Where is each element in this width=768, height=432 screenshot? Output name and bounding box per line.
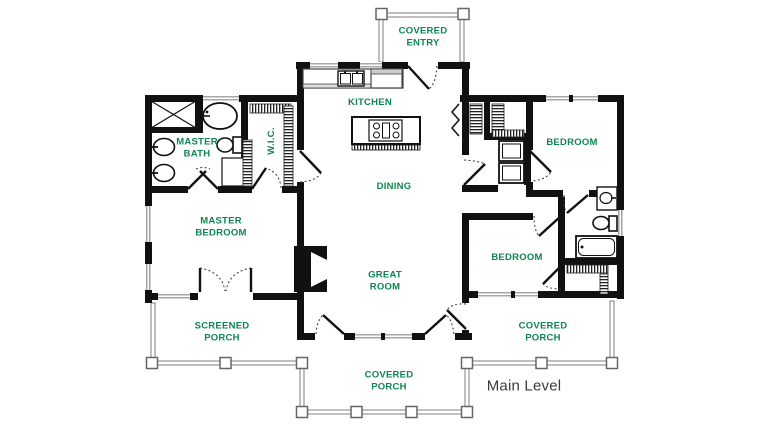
cooktop-symbol	[369, 120, 402, 141]
double-vanity-sinks-symbol	[152, 139, 175, 182]
label-great-room: GREAT ROOM	[368, 269, 402, 292]
kitchen-sink-symbol	[338, 71, 364, 86]
freestanding-tub-symbol	[203, 103, 237, 129]
label-covered-porch-right: COVERED PORCH	[519, 320, 568, 343]
shower-symbol	[151, 101, 196, 128]
linen-cabinet-symbol	[222, 158, 244, 186]
label-wic: W.I.C.	[266, 127, 278, 154]
label-covered-entry: COVERED ENTRY	[399, 25, 448, 48]
label-master-bedroom: MASTER BEDROOM	[195, 215, 246, 238]
entry-closet-rods	[470, 104, 524, 137]
toilet-symbol-master	[217, 137, 242, 153]
hall-vanity-sink-symbol	[597, 187, 617, 210]
washer-dryer-symbol	[499, 141, 524, 183]
label-covered-porch-bottom: COVERED PORCH	[365, 369, 414, 392]
hall-bathtub-symbol	[576, 236, 617, 258]
label-bedroom-bottom: BEDROOM	[491, 252, 542, 264]
fireplace-symbol	[294, 246, 327, 292]
refrigerator-symbol	[371, 69, 402, 88]
toilet-symbol-hall	[593, 216, 617, 231]
bifold-closet-door	[452, 104, 459, 136]
bedroom2-closet-rods	[567, 265, 608, 294]
label-dining: DINING	[377, 181, 412, 193]
label-master-bath: MASTER BATH	[176, 136, 218, 159]
label-main-level: Main Level	[487, 378, 562, 395]
label-kitchen: KITCHEN	[348, 97, 392, 109]
label-screened-porch: SCREENED PORCH	[195, 320, 250, 343]
floor-plan-drawing	[0, 0, 768, 432]
floor-plan: COVERED ENTRY KITCHEN MASTER BATH W.I.C.…	[0, 0, 768, 432]
label-bedroom-top: BEDROOM	[546, 137, 597, 149]
